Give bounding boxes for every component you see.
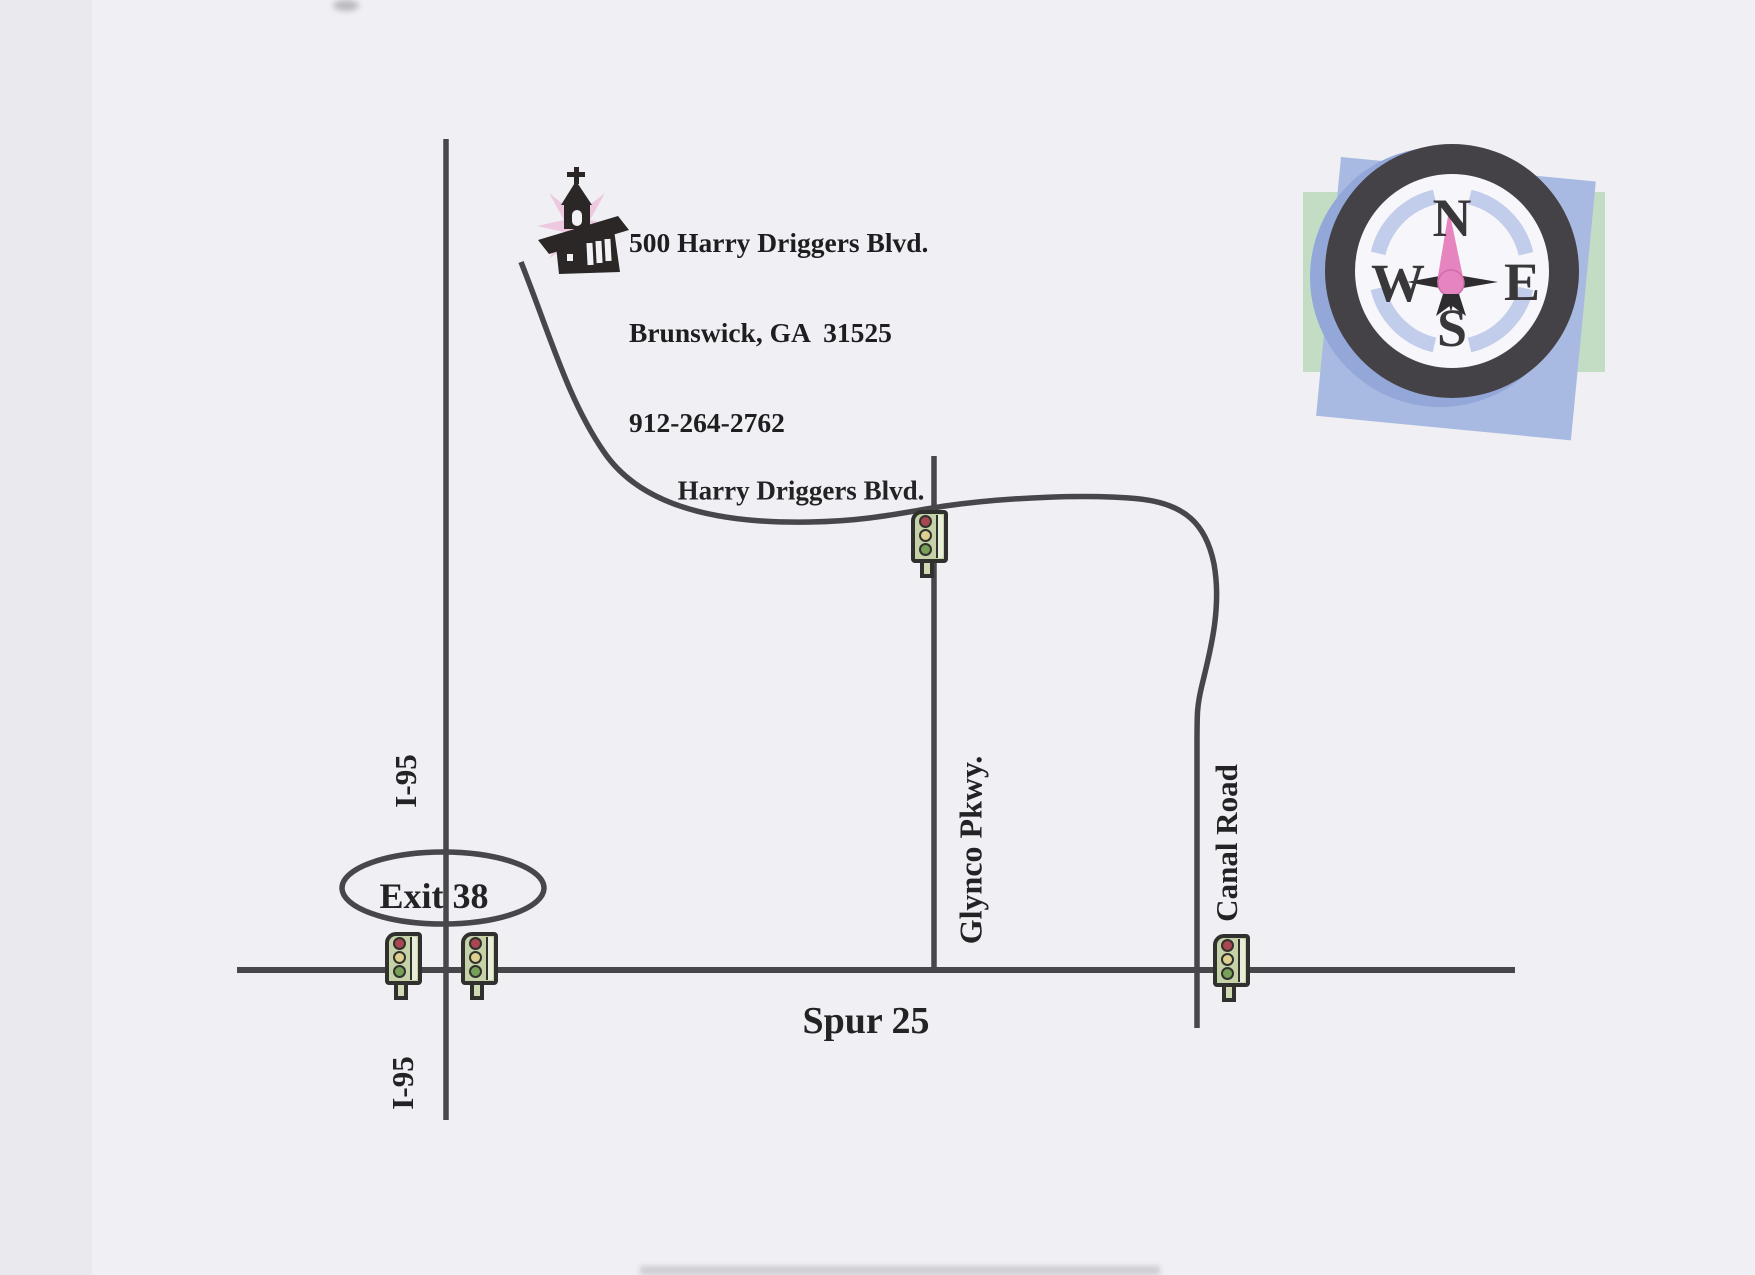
compass-north-label: N bbox=[1433, 188, 1472, 248]
church-icon bbox=[537, 167, 629, 274]
traffic-light-icon bbox=[1213, 934, 1250, 1002]
destination-address: 500 Harry Driggers Blvd. Brunswick, GA 3… bbox=[629, 168, 928, 498]
compass-west-label: W bbox=[1371, 253, 1425, 313]
road-label-harry-driggers-blvd: Harry Driggers Blvd. bbox=[678, 476, 925, 507]
road-label-canal-road: Canal Road bbox=[1209, 764, 1245, 922]
yellow-light bbox=[393, 951, 406, 964]
traffic-light-icon bbox=[461, 932, 498, 1000]
green-light bbox=[393, 965, 406, 978]
green-light bbox=[919, 543, 932, 556]
compass-south-label: S bbox=[1437, 298, 1467, 358]
red-light bbox=[469, 937, 482, 950]
compass-east-label: E bbox=[1504, 252, 1540, 312]
compass-rose-icon: N W E S bbox=[1303, 144, 1605, 440]
compass-hub bbox=[1438, 270, 1464, 296]
traffic-light-icon bbox=[911, 510, 948, 578]
address-line-1: 500 Harry Driggers Blvd. bbox=[629, 228, 928, 258]
traffic-light-icon bbox=[385, 932, 422, 1000]
road-label-i95-south: I-95 bbox=[385, 1056, 421, 1109]
address-line-2: Brunswick, GA 31525 bbox=[629, 318, 928, 348]
road-label-glynco-pkwy: Glynco Pkwy. bbox=[953, 756, 990, 944]
road-label-spur-25: Spur 25 bbox=[802, 999, 929, 1043]
yellow-light bbox=[919, 529, 932, 542]
yellow-light bbox=[469, 951, 482, 964]
red-light bbox=[1221, 939, 1234, 952]
address-phone: 912-264-2762 bbox=[629, 408, 928, 438]
yellow-light bbox=[1221, 953, 1234, 966]
green-light bbox=[469, 965, 482, 978]
exit-38-label: Exit 38 bbox=[379, 875, 488, 917]
red-light bbox=[393, 937, 406, 950]
road-label-i95-north: I-95 bbox=[388, 754, 424, 807]
red-light bbox=[919, 515, 932, 528]
green-light bbox=[1221, 967, 1234, 980]
scanned-direction-map: N W E S bbox=[0, 0, 1755, 1275]
